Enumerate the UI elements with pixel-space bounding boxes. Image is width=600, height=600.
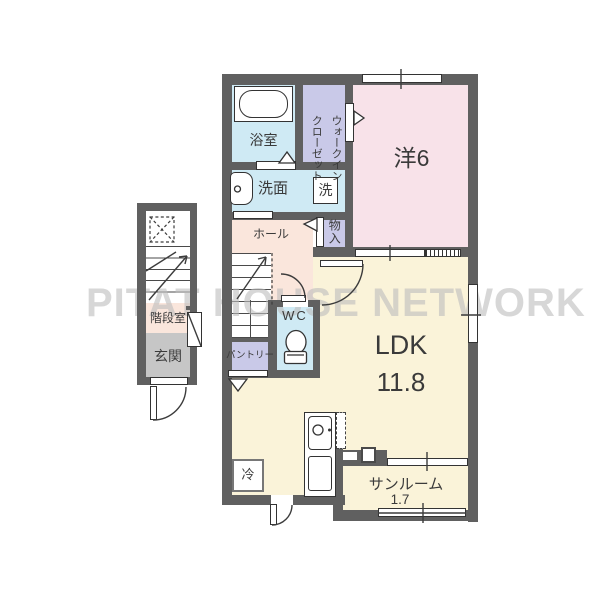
bathroom-label: 浴室 [232,133,295,148]
western-room-label: 洋6 [355,146,468,171]
wall [232,338,271,342]
sunroom-column-box [361,447,376,463]
bathtub-inner [239,90,288,118]
wall [137,203,197,211]
washer-label: 洗 [313,183,338,198]
entrance-door-leaf [150,386,157,420]
wall [190,203,197,385]
walk-in-closet-door [345,103,354,142]
sunroom-size-label: 1.7 [345,493,455,508]
entrance-label: 玄関 [146,349,190,364]
hall-ldk-door-leaf [320,260,363,267]
stair-room-label: 階段室 [144,312,192,325]
storage-label: 物入 [327,219,340,245]
window-ldk-right [468,284,478,343]
entrance-door-opening [150,377,188,385]
wall [268,307,277,378]
hall-label: ホール [240,228,302,241]
wall [295,85,303,170]
wic-line2: クローゼット [310,115,322,181]
window-sunroom-bottom [378,508,466,517]
wc-label: WC [277,309,313,323]
bedroom-hatch-panel [425,249,461,257]
wic-line1: ウォークイン [330,115,342,181]
door-arc-entrance [153,387,186,420]
sunroom-wall-slot [343,452,357,460]
bathroom-door [256,161,296,170]
refrigerator-label: 冷 [232,468,264,482]
window-sunroom-top [387,458,468,466]
window-bedroom-top [362,74,442,83]
bedroom-sliding-door [355,249,425,257]
pantry-door [228,370,268,377]
ldk-size-label: 11.8 [355,368,447,397]
washroom-sliding-door [233,211,273,219]
door-tick [186,306,194,310]
ldk-label: LDK [355,331,447,361]
pantry-label: パントリー [226,351,272,361]
floor-plan: PITAT HOUSE NETWORK [0,0,600,600]
storage-door [316,217,324,247]
ldk-door-leaf [270,504,277,525]
kitchen-counter [308,456,332,491]
wall [137,203,146,385]
washroom-label: 洗面 [250,181,296,198]
kitchen-sink [308,416,332,450]
wc-door-leaf [281,295,306,302]
wall [313,307,320,378]
stove-area-dashed [336,412,346,449]
wall [222,74,232,505]
